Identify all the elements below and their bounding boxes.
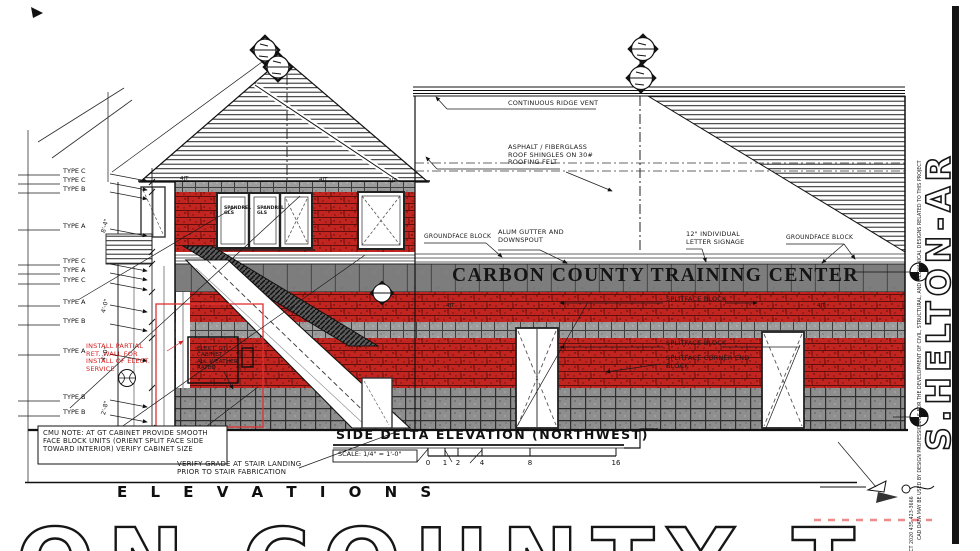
type-label: TYPE A [63,266,85,274]
note-splitface-1: SPLITFACE BLOCK [666,296,727,304]
type-label: TYPE A [63,222,85,230]
note-cmu: CMU NOTE: AT GT CABINET PROVIDE SMOOTH F… [43,429,208,453]
type-label: TYPE C [63,276,86,284]
architectural-elevation-sheet: CONTINUOUS RIDGE VENT ASPHALT / FIBERGLA… [0,0,980,551]
note-verify-grade: VERIFY GRADE AT STAIR LANDING PRIOR TO S… [177,460,301,477]
section-heading: E L E V A T I O N S [117,483,440,501]
type-label: TYPE A [63,347,85,355]
joint-marker: 4JT [180,176,188,182]
scale-tick-label: 16 [609,459,623,467]
window-triple [217,193,312,248]
note-cabinet: ELECT. GT CABINET ALL WEATHER RATED [197,346,238,372]
note-groundface-right: GROUNDFACE BLOCK [786,234,853,241]
note-gutter: ALUM GUTTER AND DOWNSPOUT [498,229,564,244]
deck-railing [106,234,152,264]
note-shingles: ASPHALT / FIBERGLASS ROOF SHINGLES ON 30… [508,144,593,167]
note-groundface-left: GROUNDFACE BLOCK [424,233,491,240]
note-signage: 12" INDIVIDUAL LETTER SIGNAGE [686,231,744,246]
scale-tick-label: 1 [438,459,452,467]
building-signage-text: CARBON COUNTY TRAINING CENTER [452,265,812,287]
window-glass-label: SPANDREL GLS [257,207,284,216]
type-label: TYPE B [63,317,86,325]
note-ridge-vent: CONTINUOUS RIDGE VENT [508,100,598,108]
type-label: TYPE B [63,408,86,416]
type-label: TYPE A [63,298,85,306]
type-label: TYPE B [63,185,86,193]
type-label: TYPE B [63,393,86,401]
scale-tick-label: 0 [421,459,435,467]
note-splitface-2: SPLITFACE BLOCK [666,340,727,348]
detail-marker [629,35,657,63]
joint-marker: 4JT [388,178,396,184]
margin-note-phone: ACT 2020 435-423-3666 [910,405,918,551]
sheet-banner-text: ON COUNTY TRA [16,509,866,551]
type-label: TYPE C [63,257,86,265]
note-splitface-corner: SPLITFACE CORNER END BLOCK [666,355,749,370]
joint-marker: 4JT [446,303,454,309]
detail-marker [627,64,655,92]
upper-windows [214,192,404,250]
note-install-partial: INSTALL PARTIAL RET. WALL FOR INSTALL OF… [86,343,150,374]
margin-note-legal: CAD DATA MAY BE USED BY DESIGN PROFESSIO… [918,60,926,540]
view-scale: SCALE: 1/4" = 1'-0" [338,450,402,458]
view-title: SIDE DELTA ELEVATION (NORTHWEST) [336,427,649,442]
scale-tick-label: 4 [475,459,489,467]
scale-tick-label: 2 [451,459,465,467]
window-glass-label: SPANDREL GLS [224,207,251,216]
joint-marker: 4JT [817,303,825,309]
joint-marker: 4JT [319,177,327,183]
sheet-border-bar [952,6,959,544]
scale-tick-label: 8 [523,459,537,467]
type-label: TYPE C [63,167,86,175]
type-label: TYPE C [63,176,86,184]
